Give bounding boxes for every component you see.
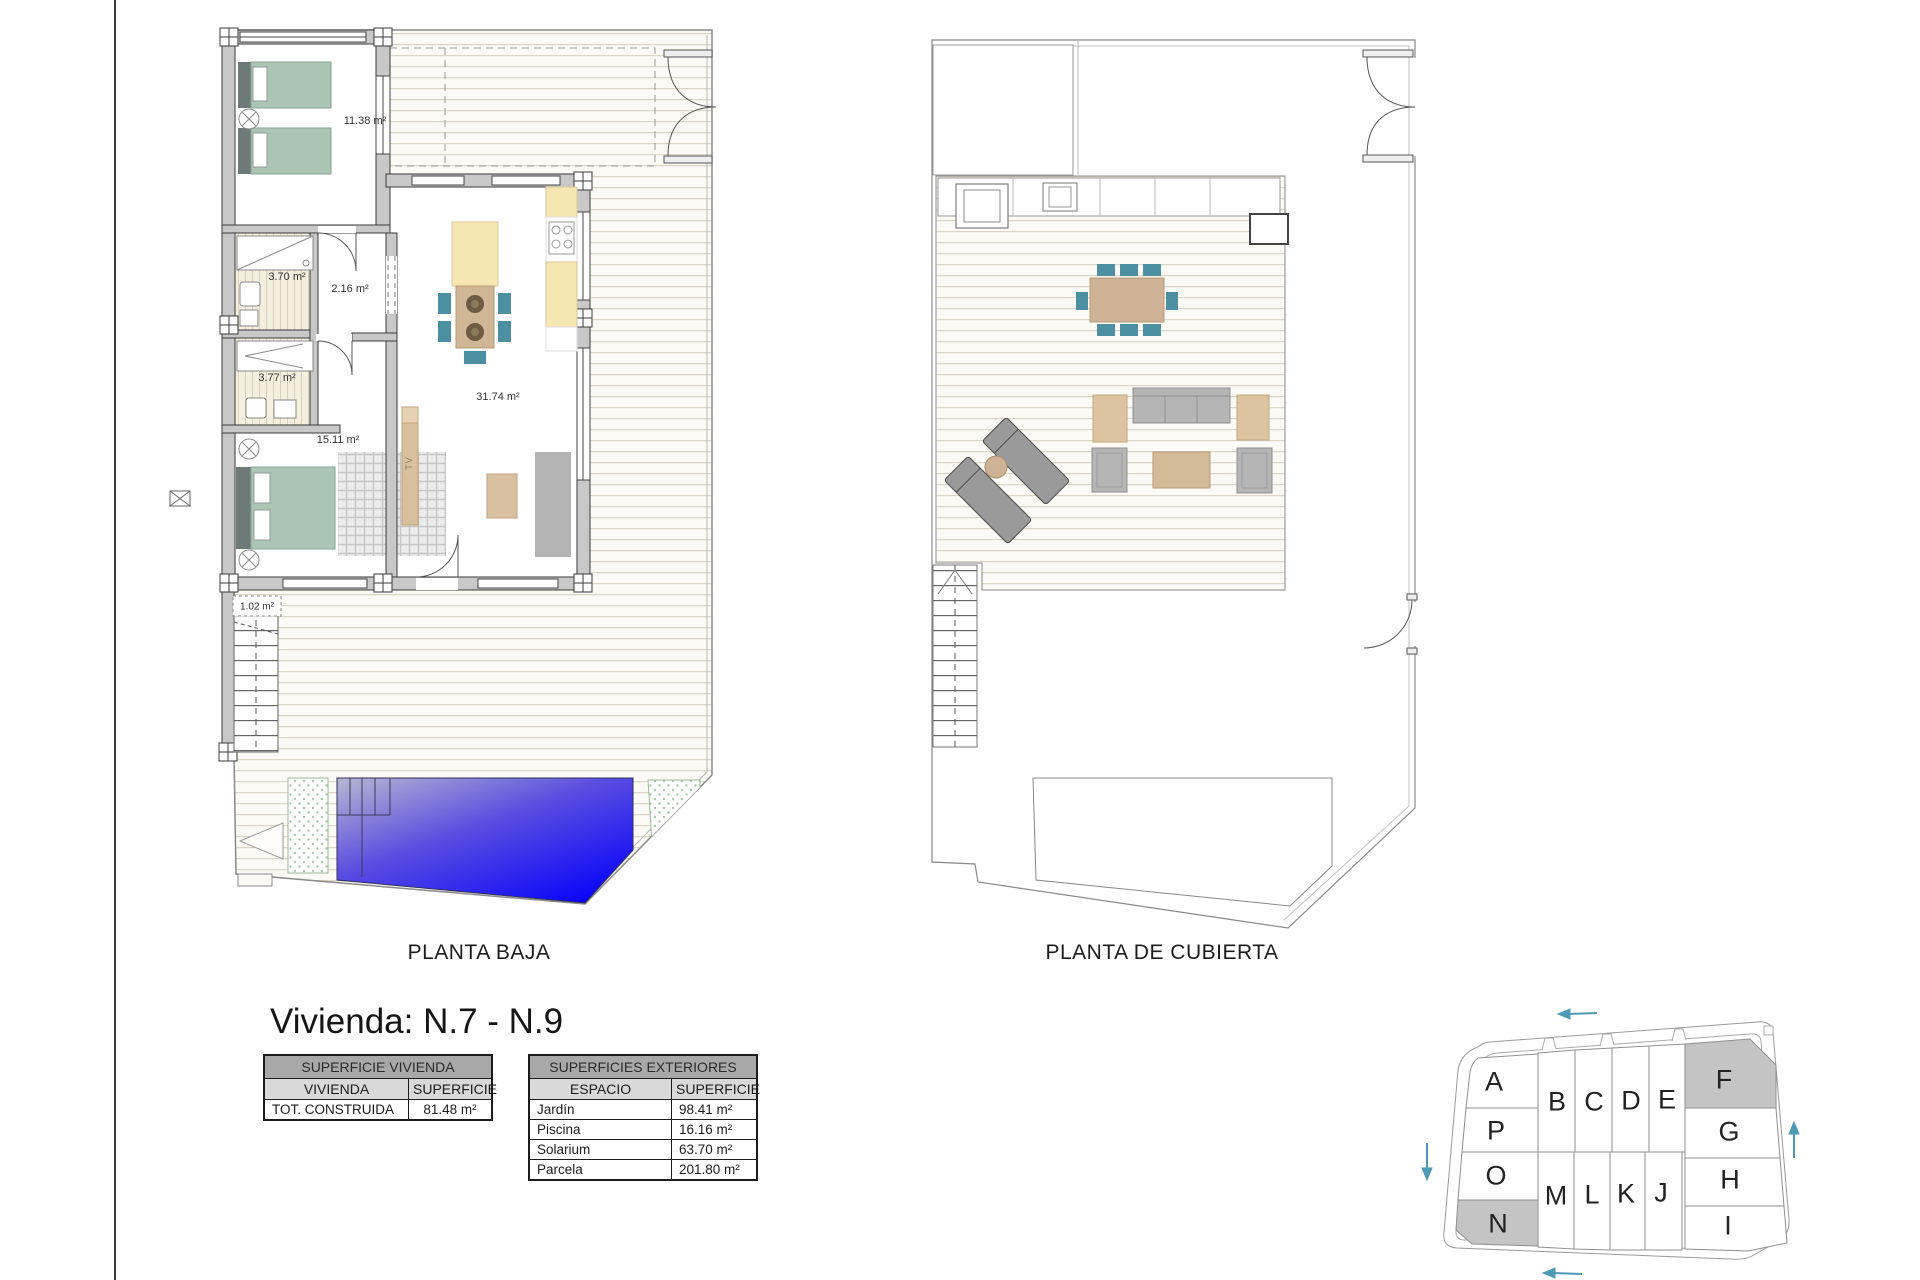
row-solarium-label: Solarium [530, 1140, 672, 1159]
planter-left [288, 778, 328, 873]
row-jardin-value: 98.41 m² [672, 1100, 756, 1119]
table-row: TOT. CONSTRUIDA 81.48 m² [265, 1100, 491, 1119]
row-parcela-value: 201.80 m² [672, 1160, 756, 1179]
bathroom2-area-label: 3.77 m² [258, 372, 295, 384]
tv-label: TV [404, 456, 414, 470]
site-plot-I: I [1724, 1211, 1732, 1242]
solarium-deck [936, 176, 1285, 590]
row-jardin-label: Jardín [530, 1100, 672, 1119]
table-row: Jardín 98.41 m² [530, 1100, 756, 1120]
pool [337, 778, 633, 903]
table-row: Parcela 201.80 m² [530, 1160, 756, 1179]
site-plot-B: B [1548, 1087, 1566, 1118]
sideboard [535, 452, 571, 557]
site-plot-K: K [1617, 1179, 1635, 1210]
table-row: Solarium 63.70 m² [530, 1140, 756, 1160]
row-parcela-label: Parcela [530, 1160, 672, 1179]
row-piscina-label: Piscina [530, 1120, 672, 1139]
planter-right [648, 780, 700, 843]
table1-col-vivienda: VIVIENDA [265, 1079, 409, 1099]
hall-area-label: 2.16 m² [331, 283, 368, 295]
meter-box [170, 491, 190, 506]
planta-cubierta-plan [932, 40, 1420, 928]
kitchen-island [452, 222, 498, 286]
site-plot-G: G [1718, 1117, 1739, 1148]
row-solarium-value: 63.70 m² [672, 1140, 756, 1159]
plan-sheet: 11.38 m² 3.70 m² 2.16 m² 3.77 m² 15.11 m… [0, 0, 1920, 1280]
table-superficies-exteriores: SUPERFICIES EXTERIORES ESPACIO SUPERFICI… [528, 1054, 758, 1181]
site-plot-H: H [1720, 1165, 1740, 1196]
bathroom1-area-label: 3.70 m² [268, 271, 305, 283]
table1-cell-concepto: TOT. CONSTRUIDA [265, 1100, 409, 1119]
site-plot-D: D [1621, 1086, 1641, 1117]
site-plot-F: F [1716, 1065, 1733, 1096]
site-plot-M: M [1545, 1181, 1568, 1212]
site-plot-L: L [1584, 1180, 1599, 1211]
site-plot-A: A [1485, 1067, 1503, 1098]
planta-baja-plan [170, 28, 716, 910]
living-area-label: 31.74 m² [476, 391, 519, 403]
stairs-roof [933, 565, 977, 747]
table-superficie-vivienda: SUPERFICIE VIVIENDA VIVIENDA SUPERFICIE … [263, 1054, 493, 1121]
table1-col-superficie: SUPERFICIE [409, 1079, 501, 1099]
table1-title: SUPERFICIE VIVIENDA [265, 1056, 491, 1079]
roof-gate [1363, 50, 1420, 162]
site-plot-O: O [1485, 1161, 1506, 1192]
site-plan [1422, 1009, 1799, 1278]
site-plot-P: P [1487, 1116, 1505, 1147]
roof-void [933, 45, 1073, 175]
planta-baja-caption: PLANTA BAJA [408, 941, 551, 965]
table1-cell-valor: 81.48 m² [409, 1100, 491, 1119]
roof-pool-outline [1033, 778, 1332, 906]
row-piscina-value: 16.16 m² [672, 1120, 756, 1139]
bedroom1-area-label: 11.38 m² [344, 115, 387, 127]
table-row: Piscina 16.16 m² [530, 1120, 756, 1140]
coffee-table [487, 474, 517, 518]
table2-title: SUPERFICIES EXTERIORES [530, 1056, 756, 1079]
roof-side-door [1364, 594, 1419, 654]
bedroom2-area-label: 15.11 m² [317, 434, 360, 446]
table2-col-superficie: SUPERFICIE [672, 1079, 764, 1099]
unit-title: Vivienda: N.7 - N.9 [270, 1002, 563, 1042]
site-plot-N: N [1488, 1209, 1508, 1240]
planta-cubierta-caption: PLANTA DE CUBIERTA [1045, 941, 1278, 965]
stairs-area-label: 1.02 m² [240, 602, 274, 613]
table2-col-espacio: ESPACIO [530, 1079, 672, 1099]
stairs-ground [233, 596, 281, 752]
site-plot-J: J [1654, 1178, 1668, 1209]
site-plot-C: C [1584, 1087, 1604, 1118]
site-plot-E: E [1658, 1085, 1676, 1116]
